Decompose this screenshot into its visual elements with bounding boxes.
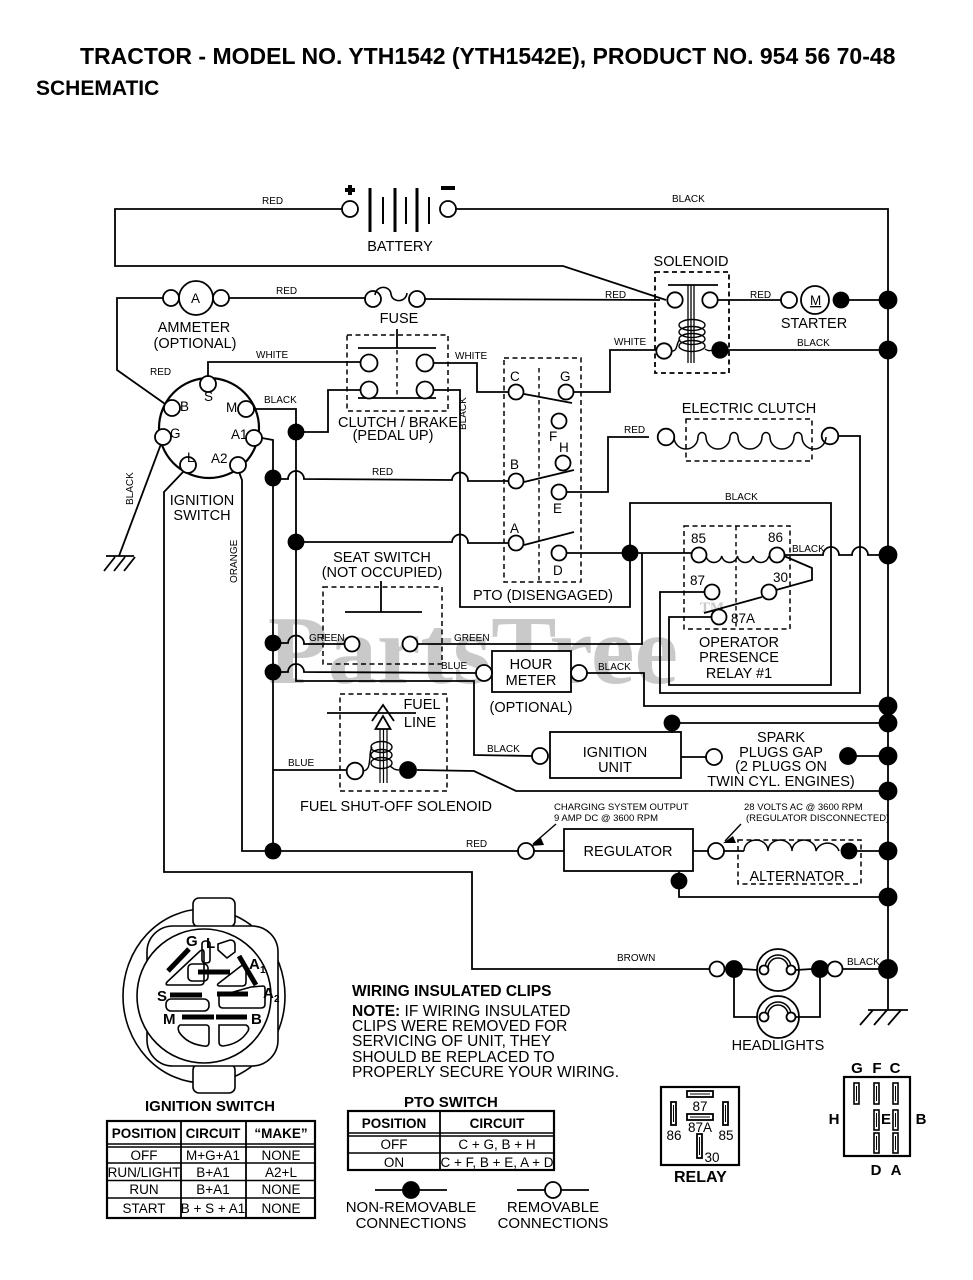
svg-text:C + F, B + E, A + D: C + F, B + E, A + D: [441, 1155, 554, 1170]
svg-text:START: START: [122, 1201, 165, 1216]
svg-text:B: B: [510, 457, 519, 472]
svg-text:IGNITION: IGNITION: [170, 493, 234, 509]
svg-text:POSITION: POSITION: [112, 1126, 177, 1141]
svg-text:L: L: [206, 935, 215, 952]
svg-text:C + G, B + H: C + G, B + H: [458, 1137, 535, 1152]
svg-text:BLACK: BLACK: [264, 395, 297, 406]
svg-text:B: B: [180, 399, 189, 414]
svg-text:ELECTRIC CLUTCH: ELECTRIC CLUTCH: [682, 401, 817, 417]
svg-text:(OPTIONAL): (OPTIONAL): [154, 336, 237, 352]
svg-text:NON-REMOVABLE: NON-REMOVABLE: [346, 1199, 477, 1216]
svg-text:AMMETER: AMMETER: [158, 320, 231, 336]
svg-text:GREEN: GREEN: [454, 633, 490, 644]
svg-text:SCHEMATIC: SCHEMATIC: [36, 77, 159, 100]
svg-text:E: E: [881, 1111, 891, 1128]
svg-text:87: 87: [692, 1099, 707, 1114]
svg-text:SWITCH: SWITCH: [173, 508, 230, 524]
svg-text:86: 86: [768, 530, 783, 545]
svg-text:87A: 87A: [731, 611, 755, 626]
svg-text:RUN: RUN: [129, 1182, 158, 1197]
svg-text:87: 87: [690, 573, 705, 588]
svg-text:87A: 87A: [688, 1120, 712, 1135]
svg-text:BLUE: BLUE: [441, 661, 467, 672]
svg-text:RED: RED: [750, 290, 771, 301]
svg-text:SOLENOID: SOLENOID: [654, 254, 729, 270]
svg-text:BLACK: BLACK: [672, 194, 705, 205]
svg-text:PROPERLY SECURE YOUR WIRING.: PROPERLY SECURE YOUR WIRING.: [352, 1064, 619, 1081]
svg-text:M: M: [226, 400, 237, 415]
svg-text:SEAT SWITCH: SEAT SWITCH: [333, 550, 431, 566]
svg-text:B+A1: B+A1: [196, 1182, 229, 1197]
svg-text:2: 2: [274, 994, 280, 1005]
svg-text:L: L: [187, 450, 195, 465]
svg-text:CONNECTIONS: CONNECTIONS: [356, 1215, 467, 1232]
svg-text:A1: A1: [231, 427, 248, 442]
svg-text:A2: A2: [211, 451, 228, 466]
svg-text:RUN/LIGHT: RUN/LIGHT: [108, 1165, 181, 1180]
svg-text:TRACTOR - MODEL NO. YTH1542 (Y: TRACTOR - MODEL NO. YTH1542 (YTH1542E), …: [80, 43, 896, 69]
svg-text:RED: RED: [624, 425, 645, 436]
svg-text:HOUR: HOUR: [510, 657, 553, 673]
svg-text:A: A: [263, 985, 274, 1002]
svg-text:HEADLIGHTS: HEADLIGHTS: [732, 1038, 825, 1054]
svg-text:86: 86: [666, 1128, 681, 1143]
svg-text:CHARGING SYSTEM OUTPUT: CHARGING SYSTEM OUTPUT: [554, 802, 689, 813]
svg-text:85: 85: [718, 1128, 733, 1143]
svg-text:(REGULATOR DISCONNECTED): (REGULATOR DISCONNECTED): [746, 813, 889, 824]
svg-text:G: G: [170, 426, 181, 441]
svg-text:A: A: [191, 291, 200, 306]
svg-text:28 VOLTS AC @ 3600 RPM: 28 VOLTS AC @ 3600 RPM: [744, 802, 863, 813]
svg-text:ON: ON: [384, 1155, 404, 1170]
svg-text:CIRCUIT: CIRCUIT: [186, 1126, 241, 1141]
svg-text:85: 85: [691, 531, 706, 546]
svg-text:B+A1: B+A1: [196, 1165, 229, 1180]
svg-text:RED: RED: [276, 286, 297, 297]
svg-text:C: C: [510, 369, 520, 384]
svg-text:PartsTree: PartsTree: [268, 597, 678, 705]
svg-text:“MAKE”: “MAKE”: [254, 1126, 307, 1141]
svg-text:OFF: OFF: [131, 1148, 158, 1163]
svg-text:C: C: [890, 1060, 901, 1077]
svg-text:RED: RED: [605, 290, 626, 301]
svg-text:CONNECTIONS: CONNECTIONS: [498, 1215, 609, 1232]
svg-text:1: 1: [260, 965, 266, 976]
svg-text:M: M: [810, 293, 821, 308]
svg-text:F: F: [549, 429, 557, 444]
svg-text:B + S + A1: B + S + A1: [181, 1201, 246, 1216]
svg-text:NONE: NONE: [261, 1201, 300, 1216]
svg-text:STARTER: STARTER: [781, 316, 847, 332]
svg-text:30: 30: [773, 570, 788, 585]
svg-text:NONE: NONE: [261, 1148, 300, 1163]
svg-text:BLACK: BLACK: [598, 662, 631, 673]
svg-text:BLACK: BLACK: [725, 492, 758, 503]
svg-text:FUSE: FUSE: [380, 311, 419, 327]
svg-text:OPERATOR: OPERATOR: [699, 635, 779, 651]
svg-text:BLACK: BLACK: [792, 544, 825, 555]
svg-text:BATTERY: BATTERY: [367, 239, 433, 255]
svg-text:G: G: [186, 933, 198, 950]
svg-text:REMOVABLE: REMOVABLE: [507, 1199, 599, 1216]
svg-text:UNIT: UNIT: [598, 760, 632, 776]
svg-text:(PEDAL UP): (PEDAL UP): [353, 428, 434, 444]
svg-text:BLACK: BLACK: [458, 397, 469, 430]
svg-text:IGNITION SWITCH: IGNITION SWITCH: [145, 1098, 275, 1115]
svg-text:A2+L: A2+L: [265, 1165, 297, 1180]
svg-text:NONE: NONE: [261, 1182, 300, 1197]
svg-text:WHITE: WHITE: [256, 350, 289, 361]
svg-text:RED: RED: [466, 839, 487, 850]
svg-text:BLACK: BLACK: [847, 957, 880, 968]
svg-text:H: H: [559, 440, 569, 455]
svg-text:PTO (DISENGAGED): PTO (DISENGAGED): [473, 588, 613, 604]
svg-text:WHITE: WHITE: [455, 351, 488, 362]
svg-text:SPARK: SPARK: [757, 730, 805, 746]
svg-text:BLUE: BLUE: [288, 758, 314, 769]
svg-text:TWIN CYL. ENGINES): TWIN CYL. ENGINES): [707, 774, 854, 790]
svg-text:B: B: [916, 1111, 927, 1128]
svg-text:GREEN: GREEN: [309, 633, 345, 644]
svg-text:G: G: [560, 369, 571, 384]
svg-text:E: E: [553, 501, 562, 516]
svg-text:RED: RED: [150, 367, 171, 378]
svg-text:CIRCUIT: CIRCUIT: [470, 1116, 525, 1131]
svg-text:(NOT OCCUPIED): (NOT OCCUPIED): [322, 565, 443, 581]
svg-text:H: H: [829, 1111, 840, 1128]
svg-text:F: F: [872, 1060, 881, 1077]
svg-text:SERVICING OF UNIT, THEY: SERVICING OF UNIT, THEY: [352, 1033, 551, 1050]
svg-text:A: A: [249, 956, 260, 973]
svg-text:RELAY: RELAY: [674, 1169, 727, 1186]
svg-text:(2 PLUGS ON: (2 PLUGS ON: [735, 759, 827, 775]
svg-text:PRESENCE: PRESENCE: [699, 650, 779, 666]
svg-text:M+G+A1: M+G+A1: [186, 1148, 240, 1163]
svg-text:D: D: [553, 563, 563, 578]
svg-text:RELAY #1: RELAY #1: [706, 666, 772, 682]
svg-text:S: S: [157, 988, 167, 1005]
svg-text:A: A: [510, 521, 519, 536]
svg-text:ALTERNATOR: ALTERNATOR: [749, 869, 844, 885]
svg-text:G: G: [851, 1060, 863, 1077]
svg-text:BLACK: BLACK: [125, 472, 136, 505]
svg-text:(OPTIONAL): (OPTIONAL): [490, 700, 573, 716]
svg-text:WHITE: WHITE: [614, 337, 647, 348]
svg-text:BLACK: BLACK: [487, 744, 520, 755]
svg-text:D: D: [871, 1162, 882, 1179]
svg-text:IGNITION: IGNITION: [583, 745, 647, 761]
svg-text:METER: METER: [506, 673, 557, 689]
svg-text:A: A: [891, 1162, 902, 1179]
svg-text:FUEL SHUT-OFF SOLENOID: FUEL SHUT-OFF SOLENOID: [300, 799, 492, 815]
svg-text:OFF: OFF: [381, 1137, 408, 1152]
svg-text:BROWN: BROWN: [617, 953, 655, 964]
svg-text:M: M: [163, 1011, 176, 1028]
svg-text:WIRING INSULATED CLIPS: WIRING INSULATED CLIPS: [352, 983, 552, 1000]
svg-text:REGULATOR: REGULATOR: [584, 844, 673, 860]
svg-text:LINE: LINE: [404, 715, 437, 731]
svg-text:FUEL: FUEL: [403, 697, 440, 713]
svg-text:ORANGE: ORANGE: [229, 539, 240, 583]
svg-text:POSITION: POSITION: [362, 1116, 427, 1131]
svg-text:RED: RED: [262, 196, 283, 207]
svg-text:RED: RED: [372, 467, 393, 478]
svg-text:BLACK: BLACK: [797, 338, 830, 349]
svg-text:B: B: [251, 1011, 262, 1028]
svg-text:PTO SWITCH: PTO SWITCH: [404, 1094, 498, 1111]
svg-text:S: S: [204, 389, 213, 404]
svg-text:9 AMP DC @ 3600 RPM: 9 AMP DC @ 3600 RPM: [554, 813, 658, 824]
svg-text:30: 30: [704, 1150, 719, 1165]
